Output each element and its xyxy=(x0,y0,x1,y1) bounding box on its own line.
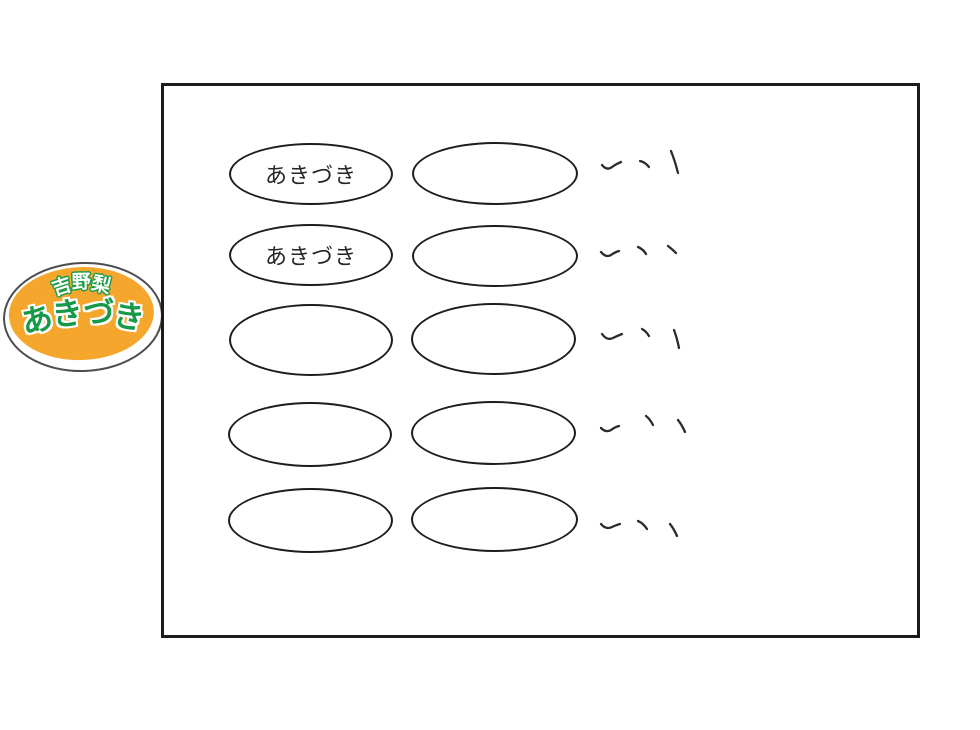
oval-row5-right xyxy=(411,487,578,552)
oval-row3-right xyxy=(411,303,576,375)
tally-marks-row3 xyxy=(598,324,698,360)
oval-row2-left: あきづき xyxy=(229,224,393,286)
oval-row2-right xyxy=(412,225,578,287)
sticker-variety-text: あきづき xyxy=(2,290,163,341)
tally-marks-row2 xyxy=(598,238,698,274)
oval-row3-left xyxy=(229,304,393,376)
oval-row5-left xyxy=(228,488,393,553)
fruit-label-sticker: 吉野梨 あきづき xyxy=(1,259,165,375)
oval-row4-left xyxy=(228,402,392,467)
scanned-worksheet-page: 吉野梨 あきづき あきづき あきづき xyxy=(0,0,980,730)
oval-row1-left: あきづき xyxy=(229,143,393,205)
tally-marks-row5 xyxy=(598,514,698,550)
oval-row1-right xyxy=(412,142,578,205)
tally-marks-row4 xyxy=(598,410,698,446)
tally-marks-row1 xyxy=(598,148,698,184)
oval-row4-right xyxy=(411,401,576,465)
